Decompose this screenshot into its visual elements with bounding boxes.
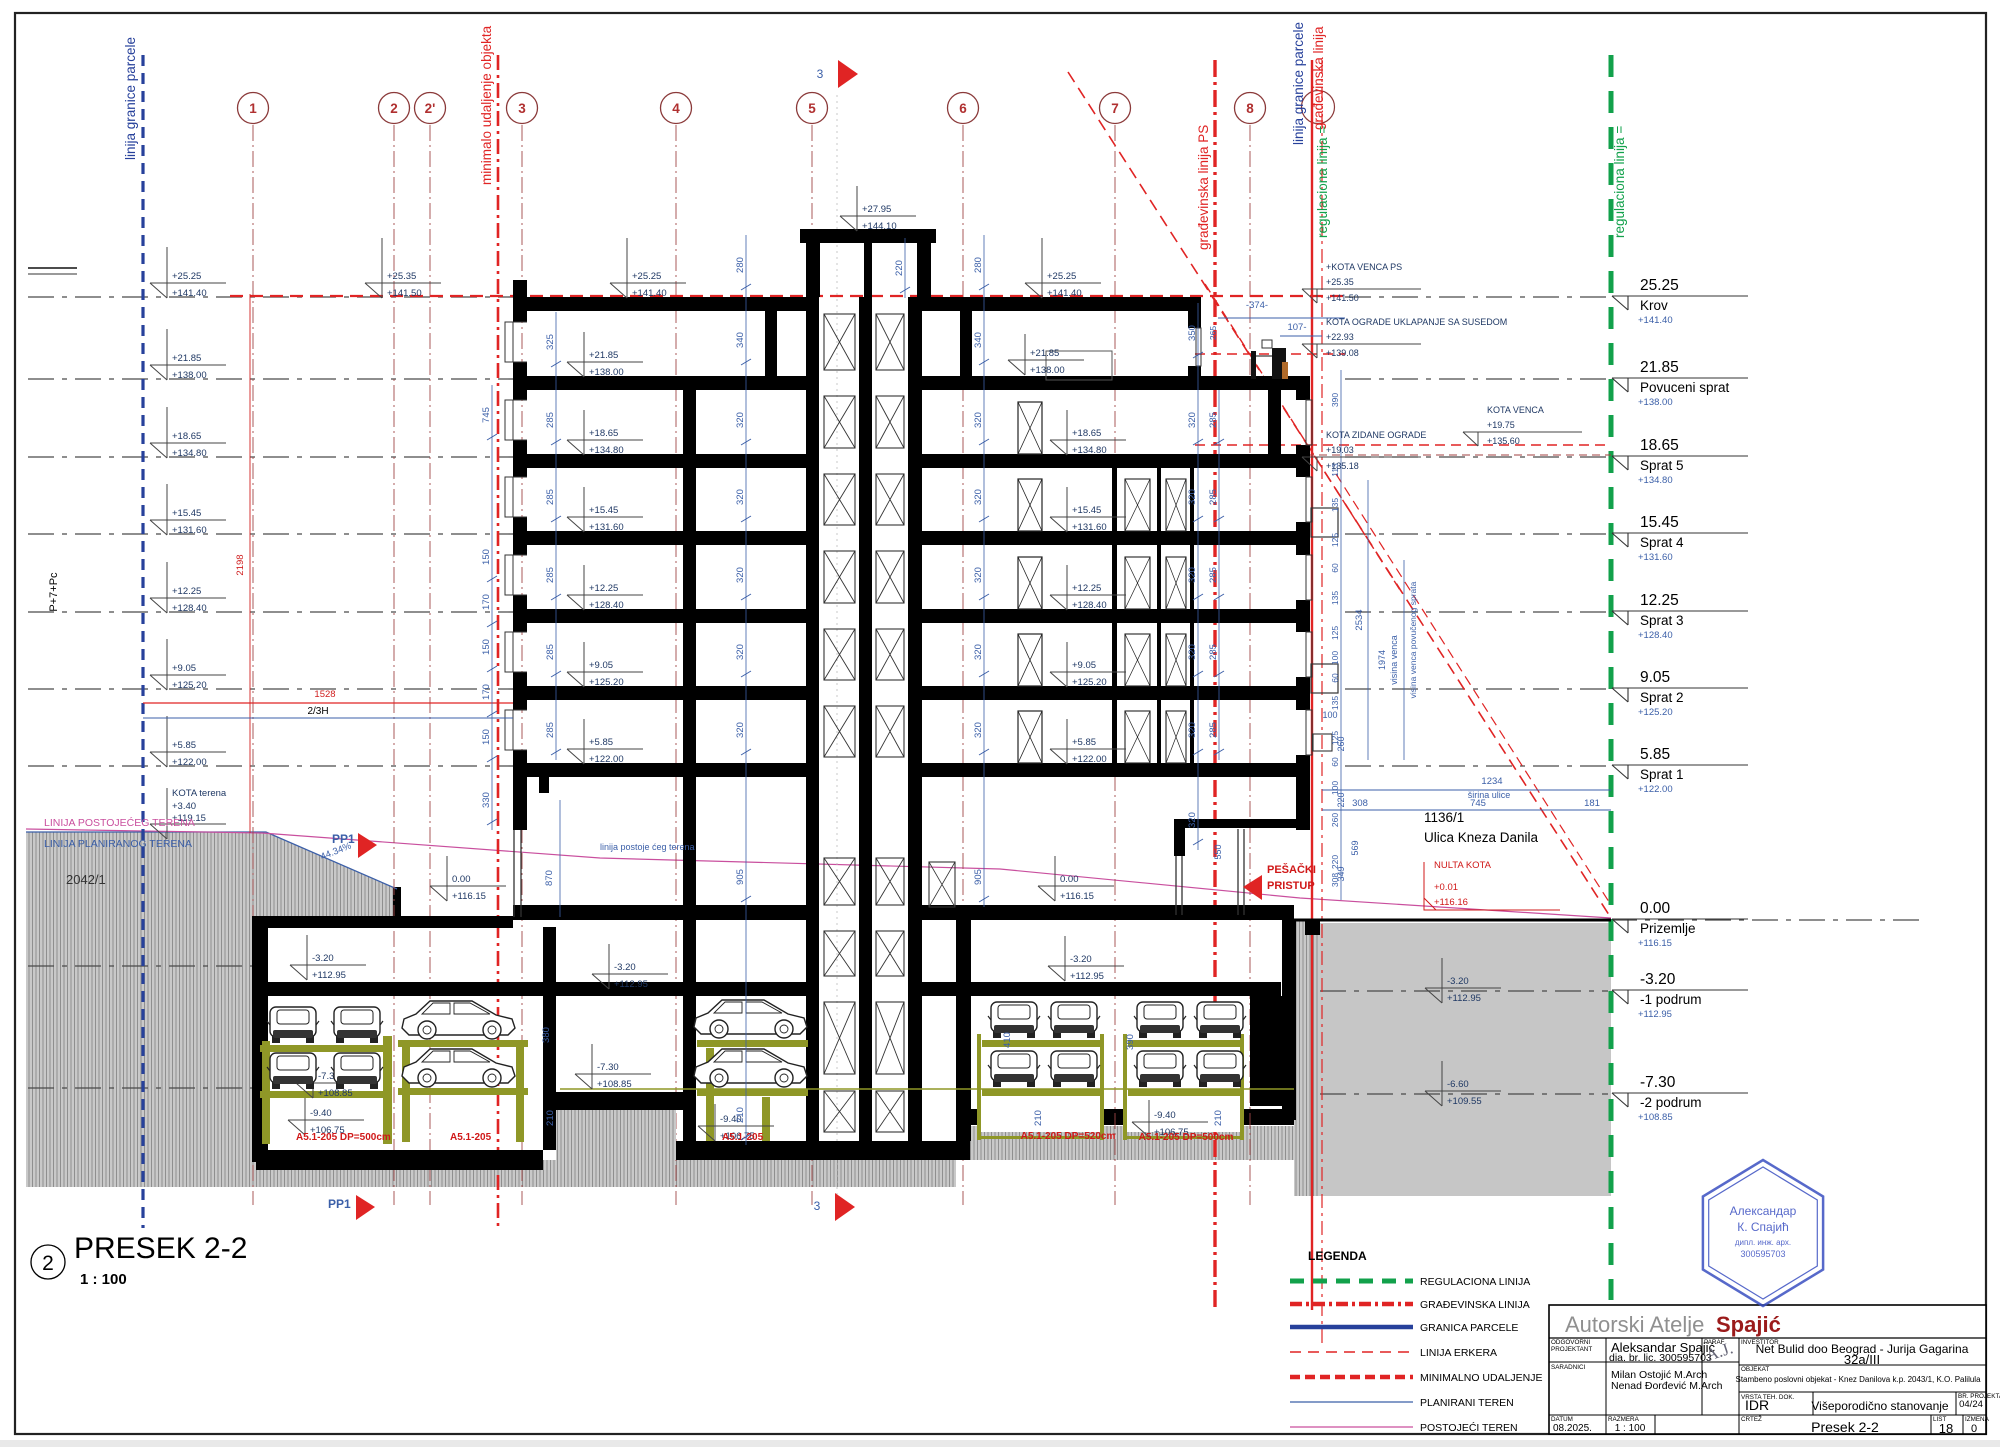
svg-text:04/24: 04/24 — [1959, 1399, 1983, 1410]
svg-text:1 : 100: 1 : 100 — [80, 1271, 127, 1288]
svg-text:+21.85: +21.85 — [1030, 348, 1059, 359]
svg-text:A5.1-205: A5.1-205 — [450, 1132, 492, 1143]
svg-text:0: 0 — [1971, 1423, 1977, 1435]
svg-text:+128.40: +128.40 — [1638, 630, 1673, 641]
svg-text:320: 320 — [735, 412, 746, 428]
svg-text:320: 320 — [735, 489, 746, 505]
svg-text:60: 60 — [1330, 563, 1340, 573]
svg-text:GRANICA PARCELE: GRANICA PARCELE — [1420, 1322, 1518, 1334]
svg-text:25.25: 25.25 — [1640, 277, 1679, 294]
svg-text:1974: 1974 — [1377, 650, 1387, 670]
svg-text:745: 745 — [481, 407, 492, 423]
svg-text:+112.95: +112.95 — [1447, 993, 1481, 1004]
svg-text:P+7+Pc: P+7+Pc — [48, 572, 60, 612]
svg-text:+131.60: +131.60 — [1638, 552, 1673, 563]
svg-text:135: 135 — [1330, 498, 1340, 512]
svg-text:Stambeno poslovni objekat - Kn: Stambeno poslovni objekat - Knez Danilov… — [1735, 1375, 1981, 1384]
svg-text:regulaciona linija =: regulaciona linija = — [1315, 126, 1330, 238]
svg-text:+141.40: +141.40 — [632, 288, 667, 299]
svg-text:+25.35: +25.35 — [1326, 277, 1354, 287]
svg-text:Nenad Đorđević M.Arch: Nenad Đorđević M.Arch — [1611, 1380, 1723, 1392]
svg-text:A5.1-205 DP=520cm: A5.1-205 DP=520cm — [1021, 1131, 1116, 1142]
svg-text:905: 905 — [735, 869, 746, 885]
svg-text:5.85: 5.85 — [1640, 746, 1670, 763]
svg-text:Presek 2-2: Presek 2-2 — [1811, 1419, 1879, 1435]
svg-text:Sprat 3: Sprat 3 — [1640, 613, 1684, 628]
svg-text:+12.25: +12.25 — [589, 583, 618, 594]
svg-text:285: 285 — [545, 412, 556, 428]
svg-text:+134.80: +134.80 — [589, 445, 624, 456]
svg-text:745: 745 — [1470, 798, 1486, 809]
svg-text:RAZMERA: RAZMERA — [1608, 1416, 1640, 1423]
svg-text:569: 569 — [1350, 840, 1360, 855]
svg-text:150: 150 — [481, 729, 492, 745]
svg-text:2/3H: 2/3H — [307, 706, 328, 717]
svg-text:+19.75: +19.75 — [1487, 420, 1515, 430]
svg-text:+108.85: +108.85 — [1638, 1112, 1673, 1123]
svg-text:-3.20: -3.20 — [1070, 954, 1092, 965]
svg-text:3: 3 — [518, 101, 526, 116]
svg-text:340: 340 — [735, 332, 746, 348]
svg-text:125: 125 — [1330, 626, 1340, 640]
svg-text:-7.30: -7.30 — [1640, 1074, 1676, 1091]
svg-text:LINIJA ERKERA: LINIJA ERKERA — [1420, 1347, 1497, 1359]
svg-text:390: 390 — [1330, 393, 1340, 407]
svg-text:2198: 2198 — [235, 554, 246, 575]
svg-text:+128.40: +128.40 — [1072, 600, 1107, 611]
svg-text:+0.01: +0.01 — [1434, 882, 1458, 893]
svg-text:285: 285 — [545, 567, 556, 583]
svg-text:+108.85: +108.85 — [318, 1088, 353, 1099]
svg-text:+108.85: +108.85 — [597, 1079, 632, 1090]
svg-text:PP1: PP1 — [328, 1197, 351, 1211]
svg-text:2': 2' — [425, 101, 436, 116]
svg-text:280: 280 — [735, 257, 746, 273]
svg-text:+138.00: +138.00 — [589, 367, 624, 378]
svg-text:300595703: 300595703 — [1740, 1249, 1785, 1259]
svg-text:210: 210 — [545, 1110, 556, 1126]
svg-text:LINIJA PLANIRANOG TERENA: LINIJA PLANIRANOG TERENA — [44, 838, 192, 850]
svg-text:170: 170 — [481, 684, 492, 700]
svg-text:+9.05: +9.05 — [589, 660, 613, 671]
svg-text:60: 60 — [1330, 673, 1340, 683]
svg-text:+9.05: +9.05 — [172, 663, 196, 674]
svg-text:-374-: -374- — [1246, 300, 1268, 311]
svg-text:К. Спајић: К. Спајић — [1737, 1220, 1789, 1234]
svg-text:325: 325 — [545, 334, 556, 350]
svg-text:320: 320 — [973, 644, 984, 660]
svg-text:linija granice parcele: linija granice parcele — [1291, 22, 1306, 145]
svg-text:210: 210 — [735, 1107, 746, 1123]
svg-text:Ulica Kneza Danila: Ulica Kneza Danila — [1424, 830, 1539, 845]
svg-text:+25.25: +25.25 — [172, 271, 201, 282]
svg-text:+25.25: +25.25 — [632, 271, 661, 282]
svg-text:+116.16: +116.16 — [1434, 897, 1468, 908]
svg-text:+12.25: +12.25 — [1072, 583, 1101, 594]
svg-text:340: 340 — [973, 332, 984, 348]
svg-text:-6.60: -6.60 — [1447, 1079, 1469, 1090]
svg-text:100: 100 — [1330, 651, 1340, 665]
svg-text:Spajić: Spajić — [1716, 1312, 1781, 1337]
svg-text:visina venca povučenog sprata: visina venca povučenog sprata — [1408, 581, 1418, 698]
svg-text:+134.80: +134.80 — [172, 448, 207, 459]
svg-text:285: 285 — [1208, 412, 1219, 428]
svg-text:-1 podrum: -1 podrum — [1640, 992, 1702, 1007]
svg-text:+15.45: +15.45 — [1072, 505, 1101, 516]
svg-text:+18.65: +18.65 — [1072, 428, 1101, 439]
svg-text:+15.45: +15.45 — [172, 508, 201, 519]
svg-text:PRESEK 2-2: PRESEK 2-2 — [74, 1232, 247, 1265]
svg-text:6: 6 — [959, 101, 967, 116]
svg-text:100: 100 — [1322, 710, 1337, 720]
svg-text:+125.20: +125.20 — [172, 680, 207, 691]
svg-text:KOTA terena: KOTA terena — [172, 788, 227, 799]
svg-text:+134.80: +134.80 — [1072, 445, 1107, 456]
svg-text:građevinska linija PS: građevinska linija PS — [1196, 125, 1211, 250]
svg-text:320: 320 — [1187, 489, 1198, 505]
svg-text:285: 285 — [1208, 722, 1219, 738]
svg-text:320: 320 — [735, 567, 746, 583]
svg-text:+122.00: +122.00 — [589, 754, 624, 765]
svg-text:0.00: 0.00 — [452, 874, 471, 885]
svg-text:5: 5 — [808, 101, 816, 116]
svg-text:Sprat 5: Sprat 5 — [1640, 458, 1684, 473]
svg-text:320: 320 — [973, 412, 984, 428]
svg-text:+122.00: +122.00 — [1072, 754, 1107, 765]
svg-text:dia. br. lic. 300595703: dia. br. lic. 300595703 — [1609, 1352, 1712, 1364]
svg-text:KOTA ZIDANE OGRADE: KOTA ZIDANE OGRADE — [1326, 430, 1426, 440]
svg-text:LEGENDA: LEGENDA — [1308, 1249, 1367, 1263]
svg-text:IZMENA: IZMENA — [1965, 1416, 1990, 1423]
svg-text:21.85: 21.85 — [1640, 359, 1679, 376]
svg-text:350: 350 — [1187, 325, 1198, 341]
svg-text:+21.85: +21.85 — [589, 350, 618, 361]
svg-text:-9.40: -9.40 — [1154, 1110, 1176, 1121]
svg-text:+5.85: +5.85 — [589, 737, 613, 748]
svg-text:08.2025.: 08.2025. — [1553, 1423, 1592, 1434]
svg-text:210: 210 — [1033, 1110, 1044, 1126]
svg-text:MINIMALNO UDALJENJE: MINIMALNO UDALJENJE — [1420, 1372, 1543, 1384]
svg-text:181: 181 — [1584, 798, 1600, 809]
svg-text:građevinska linija: građevinska linija — [1311, 26, 1326, 130]
svg-text:0.00: 0.00 — [1640, 900, 1671, 917]
svg-text:320: 320 — [735, 644, 746, 660]
svg-text:+116.15: +116.15 — [1060, 891, 1094, 902]
svg-text:IDR: IDR — [1745, 1397, 1769, 1413]
svg-text:+135.18: +135.18 — [1326, 461, 1359, 471]
svg-text:+5.85: +5.85 — [1072, 737, 1096, 748]
svg-text:Sprat 4: Sprat 4 — [1640, 535, 1684, 550]
svg-text:+128.40: +128.40 — [589, 600, 624, 611]
svg-text:260: 260 — [1336, 736, 1346, 751]
svg-text:3: 3 — [814, 1199, 821, 1213]
svg-text:+15.45: +15.45 — [589, 505, 618, 516]
svg-text:550: 550 — [1213, 844, 1223, 859]
svg-text:285: 285 — [1208, 567, 1219, 583]
svg-text:Sprat 2: Sprat 2 — [1640, 690, 1684, 705]
svg-text:REGULACIONA LINIJA: REGULACIONA LINIJA — [1420, 1276, 1530, 1288]
svg-text:-2 podrum: -2 podrum — [1640, 1095, 1702, 1110]
svg-text:-3.20: -3.20 — [1640, 971, 1676, 988]
svg-text:+122.00: +122.00 — [172, 757, 207, 768]
svg-text:+138.00: +138.00 — [172, 370, 207, 381]
svg-text:+27.95: +27.95 — [862, 204, 891, 215]
svg-text:-9.40: -9.40 — [310, 1108, 332, 1119]
svg-text:320: 320 — [1187, 722, 1198, 738]
svg-text:GRAĐEVINSKA LINIJA: GRAĐEVINSKA LINIJA — [1420, 1299, 1530, 1311]
svg-text:+25.25: +25.25 — [1047, 271, 1076, 282]
svg-text:+125.20: +125.20 — [589, 677, 624, 688]
svg-text:1 : 100: 1 : 100 — [1615, 1423, 1646, 1434]
svg-text:visina venca: visina venca — [1389, 635, 1399, 685]
svg-text:320: 320 — [735, 722, 746, 738]
svg-text:+125.20: +125.20 — [1072, 677, 1107, 688]
svg-text:+128.40: +128.40 — [172, 603, 207, 614]
svg-text:+112.95: +112.95 — [614, 979, 648, 990]
svg-text:A5.1-205: A5.1-205 — [722, 1132, 764, 1143]
svg-text:+12.25: +12.25 — [172, 586, 201, 597]
svg-text:320: 320 — [973, 489, 984, 505]
svg-text:150: 150 — [481, 639, 492, 655]
svg-text:Autorski Atelje: Autorski Atelje — [1565, 1312, 1704, 1337]
svg-text:15.45: 15.45 — [1640, 514, 1679, 531]
svg-text:18.65: 18.65 — [1640, 437, 1679, 454]
svg-text:+22.93: +22.93 — [1326, 332, 1354, 342]
svg-text:60: 60 — [1330, 757, 1340, 767]
svg-text:+138.00: +138.00 — [1638, 397, 1673, 408]
svg-text:-3.20: -3.20 — [1447, 976, 1469, 987]
svg-text:PLANIRANI TEREN: PLANIRANI TEREN — [1420, 1397, 1514, 1409]
svg-text:1136/1: 1136/1 — [1424, 810, 1464, 825]
svg-text:+138.00: +138.00 — [1030, 365, 1065, 376]
svg-text:+21.85: +21.85 — [172, 353, 201, 364]
svg-text:1234: 1234 — [1481, 776, 1502, 787]
svg-text:KOTA VENCA: KOTA VENCA — [1487, 405, 1544, 415]
svg-text:308: 308 — [1352, 798, 1368, 809]
svg-text:320: 320 — [973, 722, 984, 738]
svg-text:minimalo udaljenje objekta: minimalo udaljenje objekta — [479, 25, 494, 185]
svg-text:7: 7 — [1111, 101, 1119, 116]
svg-text:PEŠAČKI: PEŠAČKI — [1267, 863, 1316, 876]
svg-text:POSTOJEĆI TEREN: POSTOJEĆI TEREN — [1420, 1421, 1518, 1434]
svg-text:NULTA KOTA: NULTA KOTA — [1434, 860, 1492, 871]
svg-text:+18.65: +18.65 — [172, 431, 201, 442]
svg-text:320: 320 — [1187, 412, 1198, 428]
svg-text:265: 265 — [1208, 326, 1218, 340]
svg-text:170: 170 — [481, 594, 492, 610]
svg-text:1: 1 — [249, 101, 257, 116]
svg-text:+112.95: +112.95 — [1638, 1009, 1672, 1020]
svg-text:320: 320 — [1187, 812, 1198, 828]
svg-text:ODGOVORNI: ODGOVORNI — [1551, 1339, 1590, 1346]
svg-text:KOTA OGRADE UKLAPANJE SA SUSED: KOTA OGRADE UKLAPANJE SA SUSEDOM — [1326, 317, 1507, 327]
svg-text:+109.55: +109.55 — [1447, 1096, 1482, 1107]
svg-text:0.00: 0.00 — [1060, 874, 1079, 885]
svg-text:linija granice parcele: linija granice parcele — [123, 37, 138, 160]
svg-text:135: 135 — [1330, 696, 1340, 710]
svg-text:150: 150 — [481, 549, 492, 565]
svg-text:349: 349 — [1336, 866, 1346, 881]
svg-text:8: 8 — [1246, 101, 1254, 116]
svg-text:+19.03: +19.03 — [1326, 445, 1354, 455]
svg-text:+112.95: +112.95 — [1070, 971, 1104, 982]
svg-text:-3.20: -3.20 — [312, 953, 334, 964]
svg-text:+141.40: +141.40 — [1638, 315, 1673, 326]
svg-text:12.25: 12.25 — [1640, 592, 1679, 609]
svg-text:+131.60: +131.60 — [589, 522, 624, 533]
svg-text:+18.65: +18.65 — [589, 428, 618, 439]
svg-text:380: 380 — [541, 1027, 552, 1043]
svg-text:320: 320 — [973, 567, 984, 583]
svg-text:220: 220 — [894, 260, 905, 276]
svg-text:+134.80: +134.80 — [1638, 475, 1673, 486]
svg-text:+9.05: +9.05 — [1072, 660, 1096, 671]
svg-text:CRTEŽ: CRTEŽ — [1741, 1414, 1762, 1423]
svg-text:+122.00: +122.00 — [1638, 784, 1673, 795]
svg-text:Povuceni sprat: Povuceni sprat — [1640, 380, 1730, 395]
svg-text:320: 320 — [1187, 644, 1198, 660]
svg-text:2: 2 — [42, 1252, 54, 1275]
svg-text:+112.95: +112.95 — [312, 970, 346, 981]
svg-text:Višeporodično stanovanje: Višeporodično stanovanje — [1811, 1399, 1949, 1413]
svg-text:PROJEKTANT: PROJEKTANT — [1551, 1346, 1592, 1353]
svg-text:18: 18 — [1939, 1421, 1953, 1436]
svg-text:Krov: Krov — [1640, 298, 1668, 313]
svg-text:+141.40: +141.40 — [172, 288, 207, 299]
svg-text:107-: 107- — [1287, 322, 1306, 333]
svg-text:linija postoje ćeg terena: linija postoje ćeg terena — [600, 842, 695, 852]
svg-text:DATUM: DATUM — [1551, 1416, 1573, 1423]
svg-text:870: 870 — [544, 870, 555, 886]
svg-text:+131.60: +131.60 — [1072, 522, 1107, 533]
svg-text:+141.40: +141.40 — [1047, 288, 1082, 299]
svg-text:2: 2 — [390, 101, 398, 116]
svg-text:+131.60: +131.60 — [172, 525, 207, 536]
svg-text:135: 135 — [1330, 591, 1340, 605]
svg-text:Александар: Александар — [1730, 1204, 1797, 1218]
svg-text:Prizemlje: Prizemlje — [1640, 921, 1696, 936]
svg-text:+139.08: +139.08 — [1326, 348, 1359, 358]
svg-text:905: 905 — [973, 869, 984, 885]
svg-text:+3.40: +3.40 — [172, 801, 196, 812]
svg-text:285: 285 — [545, 644, 556, 660]
svg-text:дипл. инж. арх.: дипл. инж. арх. — [1735, 1238, 1791, 1247]
svg-text:A5.1-205 DP=500cm: A5.1-205 DP=500cm — [296, 1132, 391, 1143]
svg-text:3: 3 — [817, 67, 824, 81]
svg-text:+125.20: +125.20 — [1638, 707, 1673, 718]
svg-text:+116.15: +116.15 — [1638, 938, 1672, 949]
svg-text:280: 280 — [973, 257, 984, 273]
svg-text:285: 285 — [545, 489, 556, 505]
svg-text:PRISTUP: PRISTUP — [1267, 880, 1315, 892]
svg-text:+144.10: +144.10 — [862, 221, 897, 232]
svg-text:-3.20: -3.20 — [614, 962, 636, 973]
svg-text:32a/III: 32a/III — [1844, 1352, 1880, 1367]
svg-text:220: 220 — [1336, 792, 1346, 807]
svg-text:260: 260 — [1330, 813, 1340, 827]
svg-text:390: 390 — [1125, 1034, 1136, 1050]
svg-text:+25.35: +25.35 — [387, 271, 416, 282]
svg-text:Sprat 1: Sprat 1 — [1640, 767, 1684, 782]
svg-text:210: 210 — [1213, 1110, 1224, 1126]
svg-text:9.05: 9.05 — [1640, 669, 1670, 686]
svg-text:285: 285 — [1208, 489, 1219, 505]
svg-text:125: 125 — [1330, 533, 1340, 547]
svg-text:320: 320 — [1187, 567, 1198, 583]
svg-text:regulaciona linija =: regulaciona linija = — [1612, 126, 1627, 238]
svg-text:A5.1-205 DP=500cm: A5.1-205 DP=500cm — [1139, 1132, 1234, 1143]
svg-text:285: 285 — [545, 722, 556, 738]
svg-text:+141.50: +141.50 — [387, 288, 422, 299]
svg-text:410: 410 — [1002, 1032, 1013, 1048]
svg-text:4: 4 — [672, 101, 680, 116]
svg-text:LINIJA POSTOJEĆEG TERENA: LINIJA POSTOJEĆEG TERENA — [44, 816, 195, 829]
svg-text:+5.85: +5.85 — [172, 740, 196, 751]
svg-text:+116.15: +116.15 — [452, 891, 486, 902]
svg-text:2042/1: 2042/1 — [66, 872, 106, 887]
svg-text:+141.50: +141.50 — [1326, 293, 1359, 303]
svg-text:SARADNICI: SARADNICI — [1551, 1364, 1586, 1371]
svg-text:OBJEKAT: OBJEKAT — [1741, 1366, 1769, 1373]
svg-text:+135.60: +135.60 — [1487, 436, 1520, 446]
svg-text:2534: 2534 — [1354, 609, 1365, 630]
svg-text:1528: 1528 — [314, 689, 335, 700]
svg-text:+KOTA VENCA PS: +KOTA VENCA PS — [1326, 262, 1402, 272]
svg-text:-7.30: -7.30 — [597, 1062, 619, 1073]
svg-text:285: 285 — [1208, 644, 1219, 660]
svg-text:330: 330 — [481, 792, 492, 808]
